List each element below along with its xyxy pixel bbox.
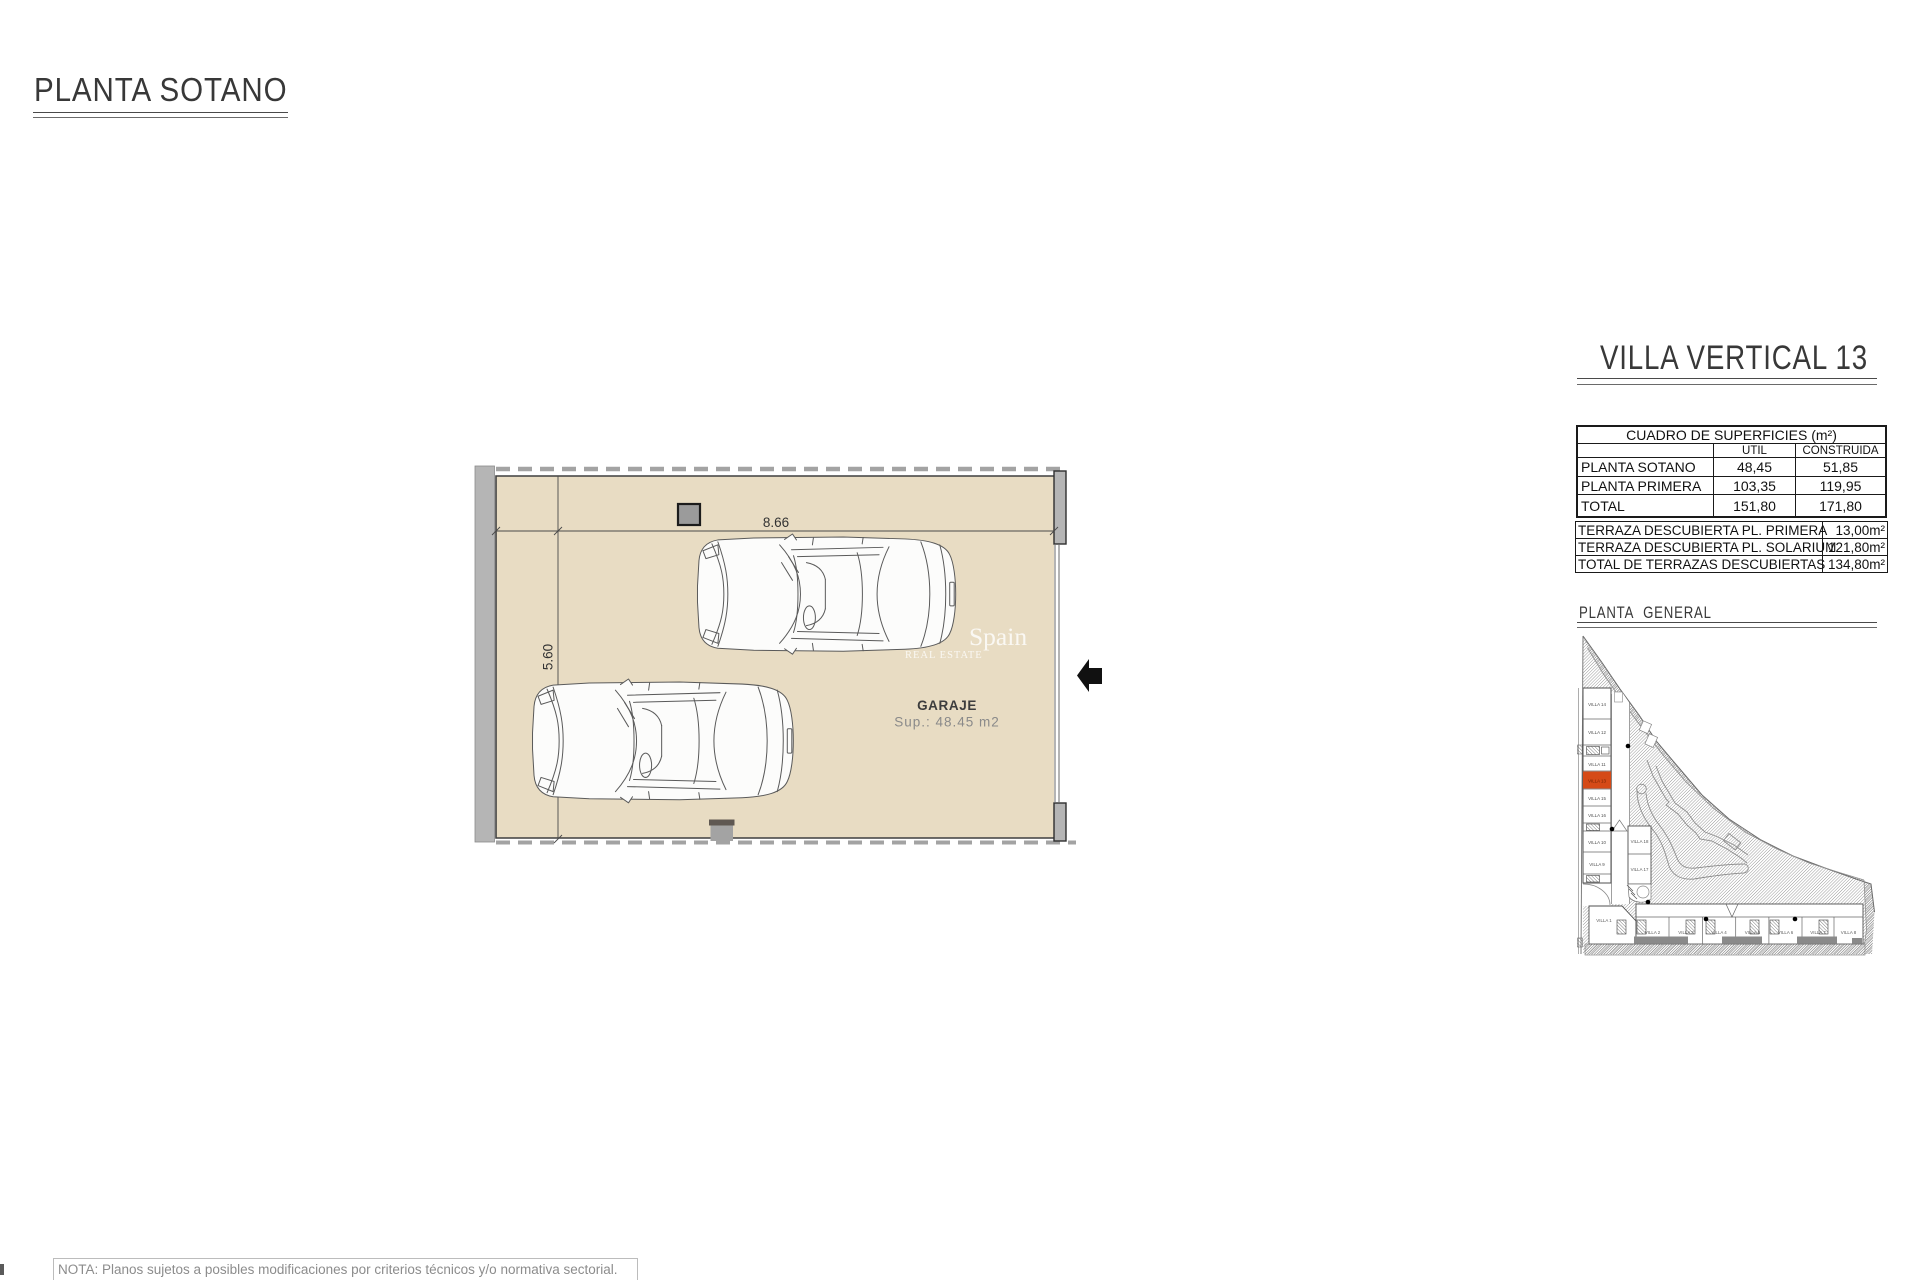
svg-text:VILLA 9: VILLA 9 — [1589, 862, 1605, 867]
svg-text:GARAJE: GARAJE — [917, 698, 977, 713]
svg-text:Spain: Spain — [969, 622, 1027, 651]
svg-text:VILLA 16: VILLA 16 — [1588, 813, 1606, 818]
svg-text:VILLA 17: VILLA 17 — [1631, 867, 1649, 872]
svg-text:VILLA 13: VILLA 13 — [1588, 779, 1606, 784]
svg-text:VILLA 8: VILLA 8 — [1841, 930, 1857, 935]
svg-text:VILLA 15: VILLA 15 — [1588, 796, 1606, 801]
svg-text:VILLA 2: VILLA 2 — [1645, 930, 1661, 935]
svg-text:Sup.: 48.45 m2: Sup.: 48.45 m2 — [894, 715, 1000, 730]
svg-text:VILLA 14: VILLA 14 — [1588, 702, 1606, 707]
svg-text:VILLA 6: VILLA 6 — [1778, 930, 1794, 935]
svg-text:VILLA 18: VILLA 18 — [1631, 839, 1649, 844]
svg-text:5.60: 5.60 — [541, 644, 556, 670]
svg-text:8.66: 8.66 — [763, 515, 789, 530]
svg-text:VILLA 11: VILLA 11 — [1588, 762, 1606, 767]
svg-text:VILLA 10: VILLA 10 — [1588, 840, 1606, 845]
svg-text:VILLA 12: VILLA 12 — [1588, 730, 1606, 735]
svg-text:VILLA 1: VILLA 1 — [1596, 918, 1612, 923]
svg-text:REAL ESTATE: REAL ESTATE — [905, 650, 983, 661]
